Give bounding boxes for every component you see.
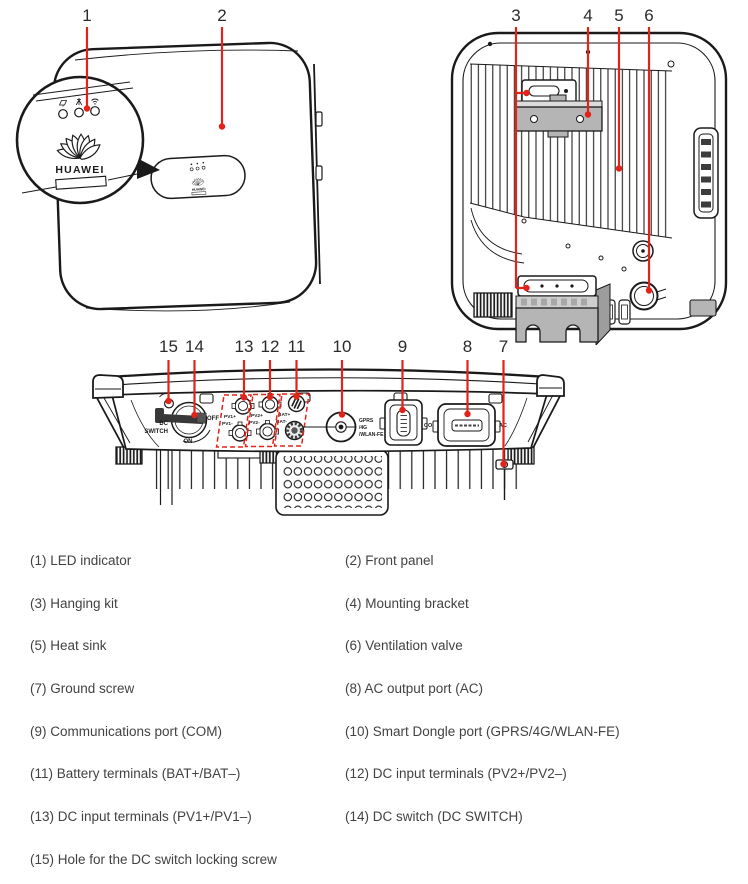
on-label: ON [184, 439, 193, 445]
legend-item: (3) Hanging kit [30, 596, 345, 639]
brand-text-small: HUAWEI [192, 187, 206, 192]
bottom-view-diagram: DC SWITCH OFF ON PV1+ PV1- PV2+ PV2- BAT… [0, 337, 748, 547]
legend-item: (6) Ventilation valve [345, 638, 730, 681]
perforated-tray [276, 450, 388, 515]
legend-item: (12) DC input terminals (PV2+/PV2–) [345, 766, 730, 809]
callout-number: 8 [463, 337, 472, 356]
legend-item: (1) LED indicator [30, 553, 345, 596]
callout-number: 15 [159, 337, 178, 356]
legend-item: (15) Hole for the DC switch locking scre… [30, 852, 345, 884]
callout-number: 3 [511, 6, 520, 25]
front-view-diagram: HUAWEI HUAWEI 1 2 [0, 0, 374, 337]
off-label: OFF [207, 416, 219, 422]
callout-number: 7 [499, 337, 508, 356]
dongle-label-2: /4G [359, 425, 367, 431]
callout-number: 13 [235, 337, 254, 356]
indicator-panel: HUAWEI [150, 155, 246, 200]
magnifier-circle: HUAWEI [17, 77, 143, 203]
hanging-kit-top [522, 80, 576, 104]
callout-number: 12 [261, 337, 280, 356]
callout-number: 6 [644, 6, 653, 25]
manual-figure-page: HUAWEI HUAWEI 1 2 [0, 0, 748, 884]
dc-label: DC [159, 421, 168, 427]
side-connector-strip [694, 128, 718, 218]
callout-number: 4 [583, 6, 592, 25]
pv1-plus-label: PV1+ [224, 414, 236, 420]
pv2-minus-label: PV2- [249, 420, 260, 426]
parts-legend: (1) LED indicator (2) Front panel (3) Ha… [30, 553, 730, 884]
callout-number: 5 [614, 6, 623, 25]
dongle-label-1: GPRS [359, 418, 374, 424]
brand-text: HUAWEI [55, 164, 104, 176]
pv2-plus-label: PV2+ [251, 413, 263, 419]
switch-label: SWITCH [144, 429, 168, 435]
callout-number: 1 [82, 6, 91, 25]
legend-item: (7) Ground screw [30, 681, 345, 724]
callout-number: 2 [217, 6, 226, 25]
legend-item: (4) Mounting bracket [345, 596, 730, 639]
callout-number: 11 [288, 337, 306, 356]
legend-item: (14) DC switch (DC SWITCH) [345, 809, 730, 852]
pv1-minus-label: PV1- [222, 421, 233, 427]
callout-number: 14 [185, 337, 204, 356]
legend-item: (8) AC output port (AC) [345, 681, 730, 724]
back-view-diagram: 3 4 5 6 [374, 0, 748, 345]
dongle-label-3: /WLAN-FE [359, 432, 384, 438]
legend-item: (10) Smart Dongle port (GPRS/4G/WLAN-FE) [345, 724, 730, 767]
legend-item: (13) DC input terminals (PV1+/PV1–) [30, 809, 345, 852]
legend-item: (5) Heat sink [30, 638, 345, 681]
legend-item: (11) Battery terminals (BAT+/BAT–) [30, 766, 345, 809]
legend-item: (9) Communications port (COM) [30, 724, 345, 767]
legend-item: (2) Front panel [345, 553, 730, 596]
callout-number: 10 [333, 337, 352, 356]
callout-number: 9 [398, 337, 407, 356]
hanging-kit-bottom [516, 276, 610, 345]
